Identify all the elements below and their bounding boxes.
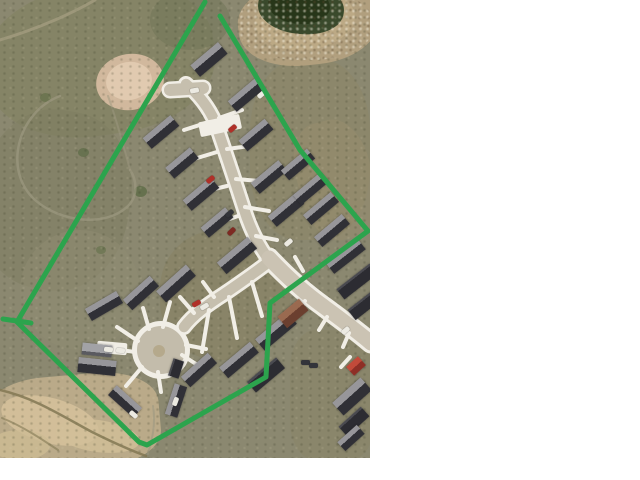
- white-margin: [370, 0, 640, 480]
- boundary-overlay: [0, 0, 370, 458]
- boundary-line: [17, 2, 368, 445]
- white-margin-bottom: [0, 458, 370, 480]
- boundary-tick: [3, 319, 31, 323]
- aerial-photo: [0, 0, 370, 458]
- screenshot-canvas: [0, 0, 640, 480]
